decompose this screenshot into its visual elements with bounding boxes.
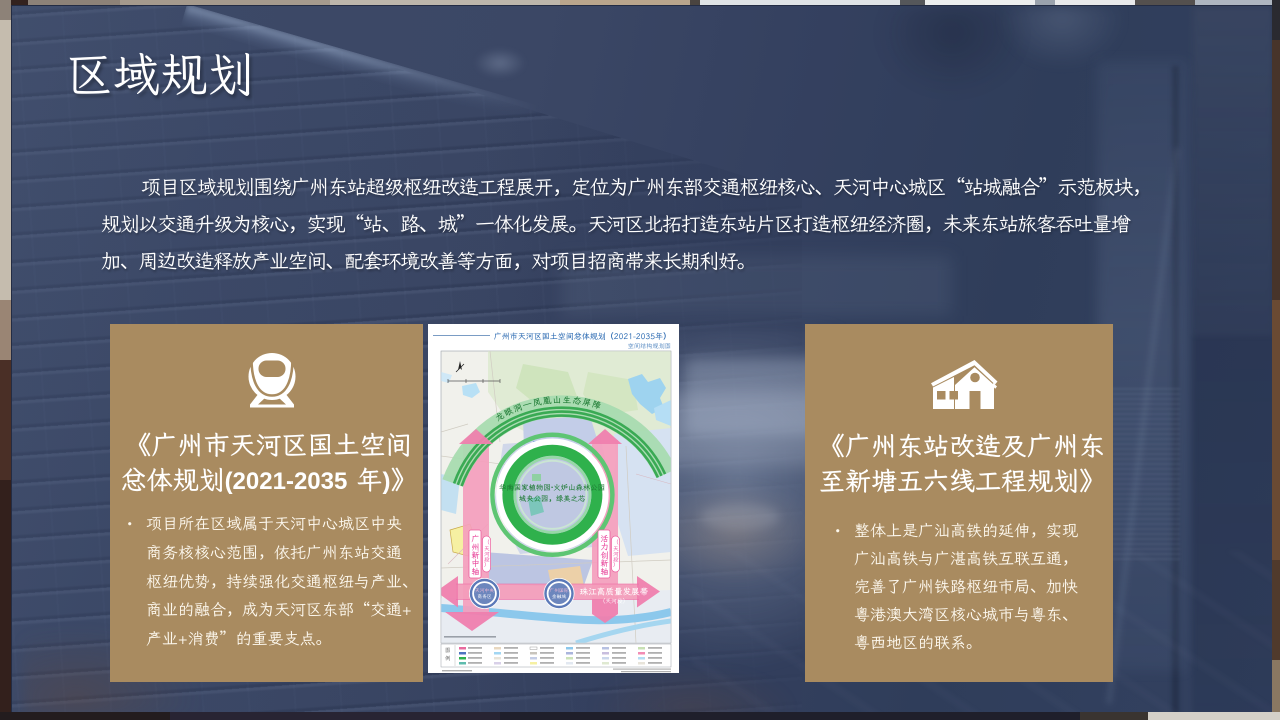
- svg-text:广州市天河区国土空间总体规划（2021-2035年）: 广州市天河区国土空间总体规划（2021-2035年）: [494, 332, 671, 342]
- svg-text:空间结构规划图: 空间结构规划图: [628, 342, 671, 350]
- svg-text:城央公园，绿美之芯: 城央公园，绿美之芯: [519, 494, 586, 504]
- svg-text:例: 例: [445, 654, 451, 662]
- svg-text:珠江高质量发展带: 珠江高质量发展带: [580, 587, 649, 598]
- svg-text:（天河段）: （天河段）: [483, 539, 491, 568]
- svg-text:商务区: 商务区: [477, 594, 492, 600]
- svg-text:（天河段）: （天河段）: [612, 539, 620, 568]
- svg-text:广州新中轴: 广州新中轴: [471, 534, 481, 575]
- svg-text:图: 图: [445, 646, 451, 654]
- svg-text:活力创新轴: 活力创新轴: [600, 534, 610, 575]
- svg-text:华南国家植物园·火炉山森林公园: 华南国家植物园·火炉山森林公园: [499, 483, 605, 493]
- svg-text:金融城: 金融城: [552, 594, 567, 600]
- svg-text:（天河段）: （天河段）: [600, 597, 629, 605]
